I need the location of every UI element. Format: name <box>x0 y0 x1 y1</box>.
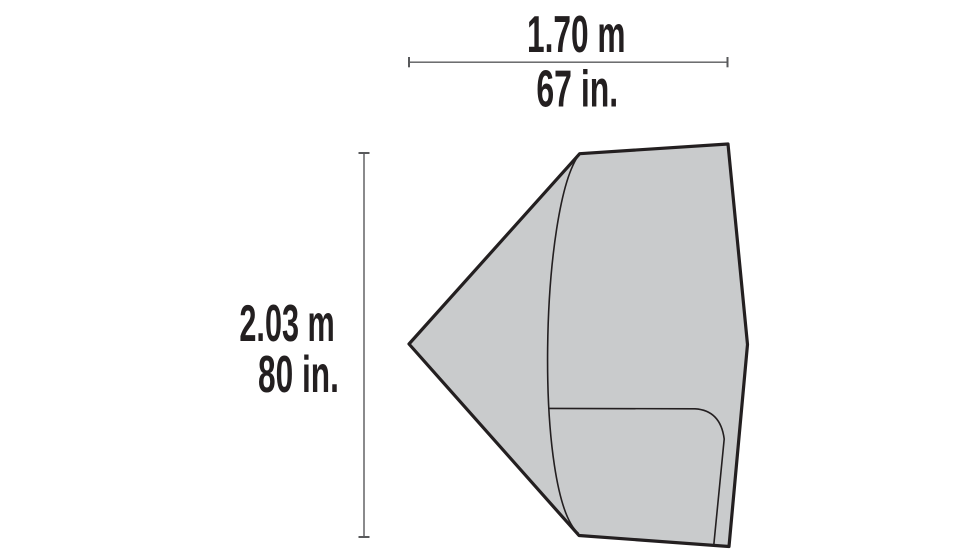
svg-text:80 in.: 80 in. <box>258 345 339 403</box>
svg-text:2.03 m: 2.03 m <box>239 294 334 352</box>
svg-text:67 in.: 67 in. <box>536 59 618 117</box>
svg-text:1.70 m: 1.70 m <box>527 5 626 63</box>
